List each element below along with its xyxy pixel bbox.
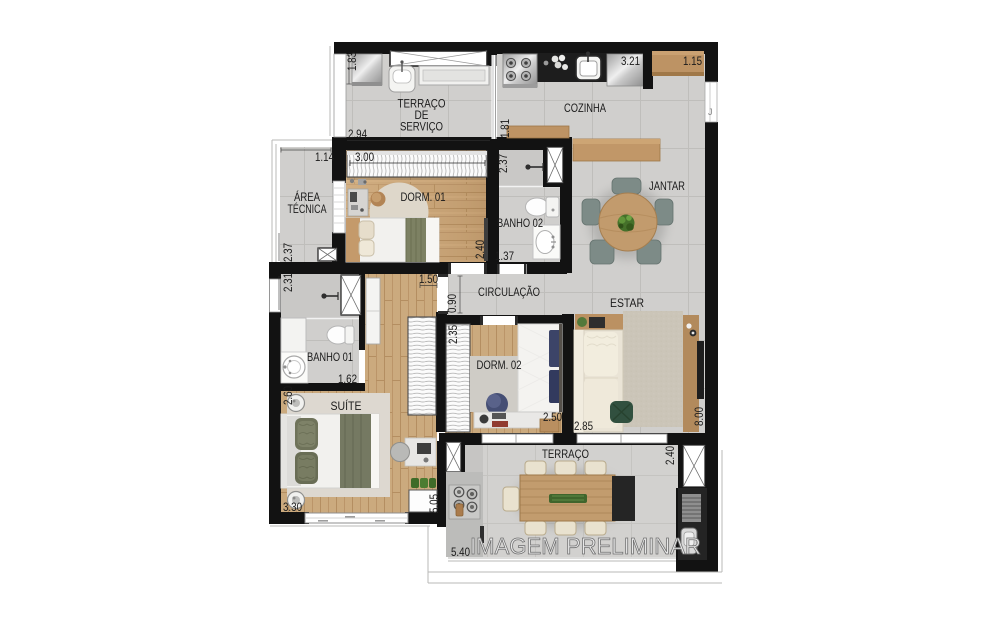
svg-text:2.85: 2.85 <box>574 421 593 433</box>
svg-text:3.30: 3.30 <box>283 502 302 514</box>
svg-text:CIRCULAÇÃO: CIRCULAÇÃO <box>478 285 540 299</box>
svg-text:JANTAR: JANTAR <box>649 179 685 193</box>
svg-text:5.40: 5.40 <box>451 547 470 559</box>
svg-text:1.15: 1.15 <box>683 56 702 68</box>
svg-text:1.81: 1.81 <box>500 119 512 138</box>
svg-text:COZINHA: COZINHA <box>564 101 606 115</box>
svg-text:2.50: 2.50 <box>543 412 562 424</box>
svg-text:2.60: 2.60 <box>283 386 295 405</box>
svg-text:BANHO 02: BANHO 02 <box>497 216 543 230</box>
svg-text:5.05: 5.05 <box>429 494 441 513</box>
svg-text:2.40: 2.40 <box>665 446 677 465</box>
svg-text:ESTAR: ESTAR <box>610 296 644 310</box>
svg-text:TERRAÇO: TERRAÇO <box>542 447 589 461</box>
svg-text:3.00: 3.00 <box>355 152 374 164</box>
svg-text:SUÍTE: SUÍTE <box>331 398 362 413</box>
svg-text:IMAGEM PRELIMINAR: IMAGEM PRELIMINAR <box>470 533 701 559</box>
svg-text:2.31: 2.31 <box>283 273 295 292</box>
svg-text:J: J <box>708 107 713 117</box>
svg-text:SERVIÇO: SERVIÇO <box>400 120 443 134</box>
svg-text:1.37: 1.37 <box>495 251 514 263</box>
svg-text:8.00: 8.00 <box>694 407 706 426</box>
svg-text:2.94: 2.94 <box>348 129 368 141</box>
svg-text:BANHO 01: BANHO 01 <box>307 350 353 364</box>
svg-text:2.40: 2.40 <box>475 240 487 259</box>
svg-text:0.90: 0.90 <box>447 294 459 313</box>
svg-text:3.21: 3.21 <box>621 56 640 68</box>
svg-text:2.35: 2.35 <box>448 325 460 344</box>
svg-text:DORM. 01: DORM. 01 <box>401 190 446 204</box>
svg-text:1.14: 1.14 <box>315 152 335 164</box>
svg-text:TÉCNICA: TÉCNICA <box>288 201 327 216</box>
svg-text:2.37: 2.37 <box>283 243 295 262</box>
svg-text:1.62: 1.62 <box>338 374 357 386</box>
svg-text:DORM. 02: DORM. 02 <box>477 358 522 372</box>
svg-text:2.37: 2.37 <box>498 154 510 173</box>
svg-text:1.50: 1.50 <box>419 274 438 286</box>
